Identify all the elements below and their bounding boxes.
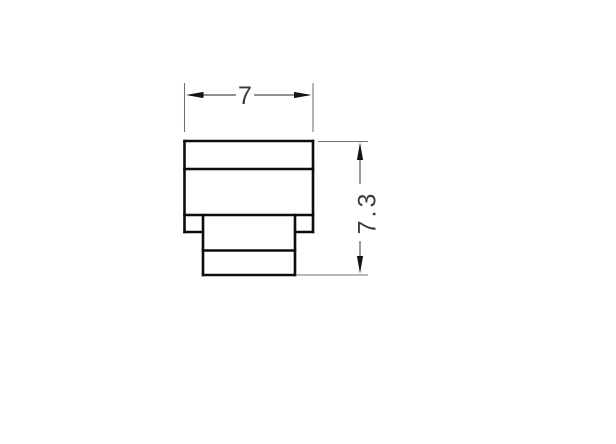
width-dimension-label: 7 <box>238 82 252 110</box>
height-arrow-down-icon <box>357 256 363 274</box>
height-dimension: 7.3 <box>297 142 382 276</box>
part-outline <box>185 141 314 275</box>
width-arrow-right-icon <box>294 92 312 98</box>
width-dimension: 7 <box>185 82 314 132</box>
width-arrow-left-icon <box>186 92 204 98</box>
drawing-page: 7 7.3 <box>0 0 616 444</box>
technical-drawing-canvas: 7 7.3 <box>0 0 616 444</box>
height-arrow-up-icon <box>357 143 363 161</box>
height-dimension-label: 7.3 <box>354 191 382 235</box>
